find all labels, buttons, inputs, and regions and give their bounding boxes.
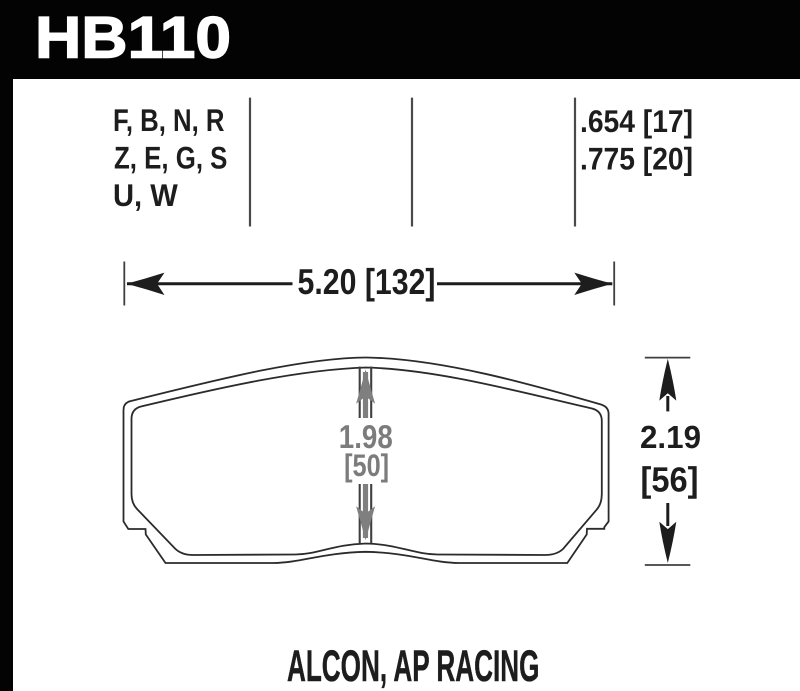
svg-text:.775 [20]: .775 [20] bbox=[580, 142, 693, 177]
svg-text:U, W: U, W bbox=[113, 178, 178, 213]
svg-text:[50]: [50] bbox=[344, 448, 389, 483]
svg-text:HB110: HB110 bbox=[35, 6, 231, 71]
svg-text:5.20 [132]: 5.20 [132] bbox=[298, 261, 436, 302]
svg-text:ALCON, AP RACING: ALCON, AP RACING bbox=[287, 642, 539, 691]
svg-text:Z, E, G, S: Z, E, G, S bbox=[114, 141, 227, 176]
svg-text:[56]: [56] bbox=[641, 460, 699, 499]
svg-text:.654 [17]: .654 [17] bbox=[580, 104, 693, 139]
svg-text:F, B, N, R: F, B, N, R bbox=[113, 103, 225, 138]
svg-text:2.19: 2.19 bbox=[640, 419, 701, 455]
